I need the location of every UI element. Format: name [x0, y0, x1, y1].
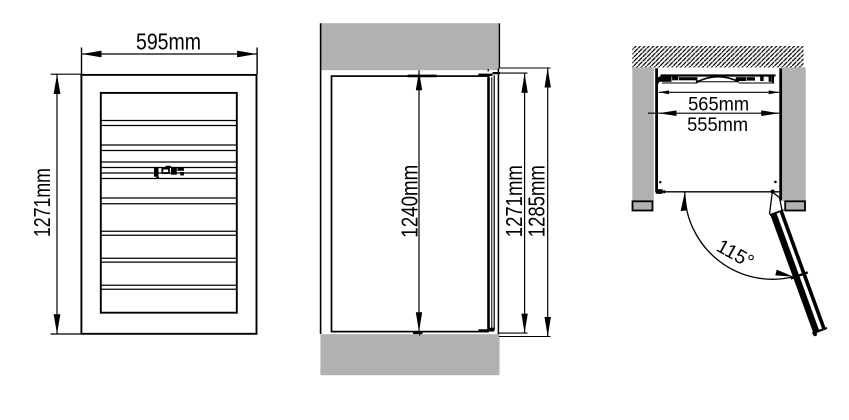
- svg-text:1240mm: 1240mm: [396, 165, 422, 238]
- svg-text:1271mm: 1271mm: [29, 168, 55, 237]
- svg-text:595mm: 595mm: [136, 28, 201, 54]
- svg-text:555mm: 555mm: [687, 114, 748, 136]
- svg-text:1285mm: 1285mm: [524, 165, 550, 237]
- svg-text:565mm: 565mm: [688, 93, 749, 115]
